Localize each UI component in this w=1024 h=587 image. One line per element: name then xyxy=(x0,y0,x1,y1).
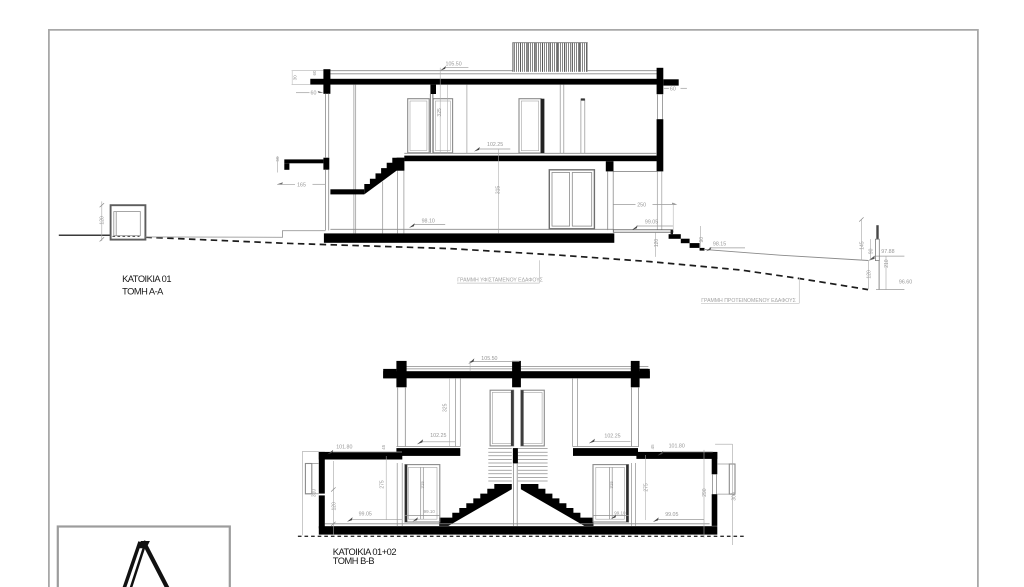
svg-text:120: 120 xyxy=(867,270,873,279)
svg-text:99.05: 99.05 xyxy=(359,512,372,518)
svg-text:45: 45 xyxy=(381,444,386,450)
svg-text:325: 325 xyxy=(443,403,449,412)
svg-text:ΓΡΑΜΜΗ ΠΡΟΤΕΙΝΟΜΕΝΟΥ ΕΔΑΦΟΥΣ: ΓΡΑΜΜΗ ΠΡΟΤΕΙΝΟΜΕΝΟΥ ΕΔΑΦΟΥΣ xyxy=(701,298,796,304)
svg-text:97.88: 97.88 xyxy=(881,249,894,255)
svg-text:99.10: 99.10 xyxy=(424,509,436,514)
svg-text:120: 120 xyxy=(332,502,338,511)
svg-text:101.80: 101.80 xyxy=(336,445,352,451)
svg-text:315: 315 xyxy=(496,186,502,195)
svg-text:120: 120 xyxy=(654,239,660,248)
svg-text:315: 315 xyxy=(609,481,614,489)
svg-text:165: 165 xyxy=(297,182,306,188)
svg-text:45: 45 xyxy=(650,444,655,450)
svg-text:99.05: 99.05 xyxy=(665,512,678,518)
svg-text:99.10: 99.10 xyxy=(614,511,626,516)
svg-text:101.80: 101.80 xyxy=(669,444,685,450)
svg-text:105.50: 105.50 xyxy=(481,356,497,362)
svg-text:145: 145 xyxy=(860,241,866,250)
svg-text:ΤΟΜΗ Α-Α: ΤΟΜΗ Α-Α xyxy=(122,286,164,296)
svg-text:275: 275 xyxy=(644,483,650,492)
svg-text:310: 310 xyxy=(311,489,317,498)
svg-text:98.15: 98.15 xyxy=(713,241,726,247)
svg-text:60: 60 xyxy=(312,70,317,76)
svg-text:102.25: 102.25 xyxy=(487,142,503,148)
svg-text:60: 60 xyxy=(670,86,676,92)
svg-text:ΤΟΜΗ Β-Β: ΤΟΜΗ Β-Β xyxy=(333,556,375,566)
svg-text:60: 60 xyxy=(311,91,317,97)
svg-text:325: 325 xyxy=(437,108,443,117)
svg-text:30: 30 xyxy=(292,75,297,81)
svg-text:105.50: 105.50 xyxy=(446,62,462,68)
svg-text:250: 250 xyxy=(637,203,646,209)
svg-text:90: 90 xyxy=(699,237,705,243)
svg-text:99.05: 99.05 xyxy=(645,219,658,225)
svg-text:275: 275 xyxy=(379,480,385,489)
svg-text:315: 315 xyxy=(420,481,425,489)
svg-text:98.10: 98.10 xyxy=(422,219,435,225)
svg-text:102.25: 102.25 xyxy=(430,433,446,439)
svg-text:96.60: 96.60 xyxy=(899,279,912,285)
svg-text:210: 210 xyxy=(884,259,890,268)
svg-text:290: 290 xyxy=(702,488,708,497)
svg-text:ΚΑΤΟΙΚΙΑ 01: ΚΑΤΟΙΚΙΑ 01 xyxy=(122,274,171,284)
svg-text:90: 90 xyxy=(869,248,875,254)
svg-text:120: 120 xyxy=(99,216,105,225)
svg-text:102.25: 102.25 xyxy=(604,434,620,440)
